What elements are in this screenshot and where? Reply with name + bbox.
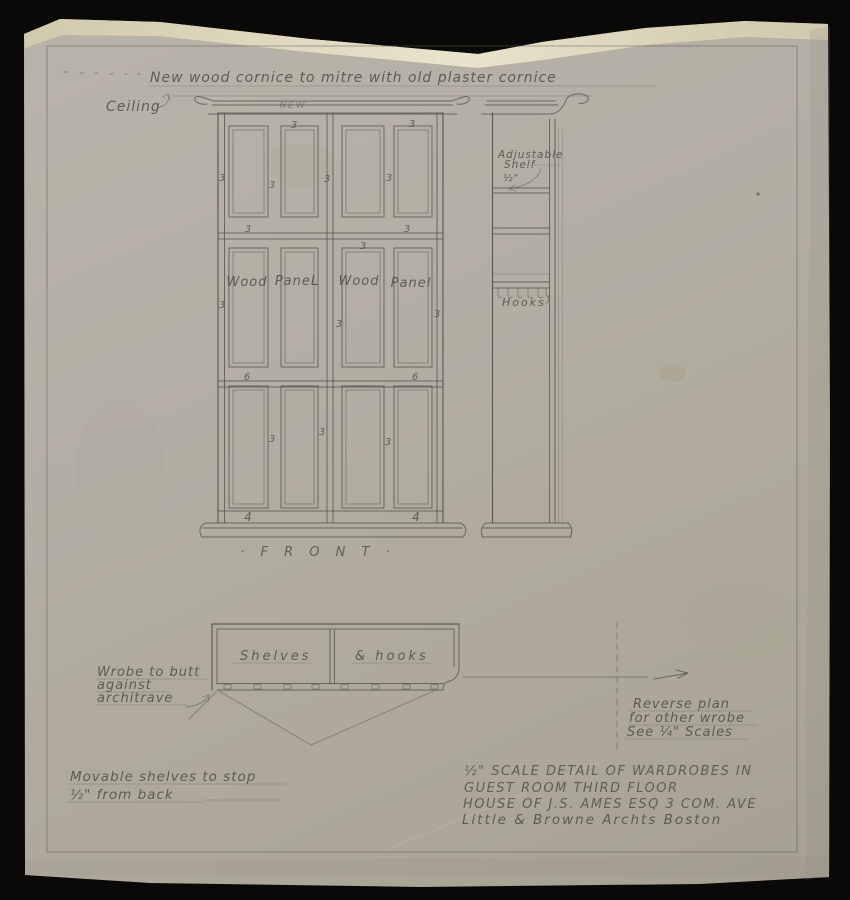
panel (342, 248, 384, 367)
dimension-labels: 3 3 3 3 3 3 3 3 3 3 3 3 3 3 3 6 6 4 4 (219, 119, 440, 524)
shelf-text: Shelf (504, 159, 537, 171)
inner-stiles (225, 113, 438, 523)
panel (281, 248, 318, 367)
panel-mould (398, 252, 428, 363)
cornice-scroll (552, 94, 588, 114)
plan-hooks-label: & hooks (355, 649, 429, 664)
panel (342, 386, 384, 508)
dim-label: 3 (404, 224, 410, 235)
panel-mould (346, 130, 380, 213)
front-caption: · F R O N T · (240, 545, 395, 560)
ceiling-text: Ceiling (106, 99, 161, 115)
reverse-line1: Reverse plan (633, 697, 730, 712)
pencil-drawing: New wood cornice to mitre with old plast… (0, 0, 850, 900)
dim-label: 3 (385, 437, 391, 448)
new-label: NEW (279, 101, 306, 111)
title-line2: GUEST ROOM THIRD FLOOR (464, 781, 679, 796)
middle-panels (229, 248, 432, 367)
section-cornice (482, 94, 588, 114)
plan-view: Shelves & hooks (189, 622, 688, 752)
hooks-text: Hooks (502, 296, 546, 309)
panel-mould (233, 252, 264, 363)
door-swing-lines (219, 691, 434, 745)
plan-corner-mould (443, 668, 459, 690)
panel-word: Wood (338, 274, 379, 289)
hook-rail (493, 282, 549, 288)
movable-shelves-note: Movable shelves to stop ½" from back (68, 769, 285, 803)
section-front-lines (550, 119, 556, 523)
dim-label: 3 (219, 300, 225, 311)
title-line1: ½" SCALE DETAIL OF WARDROBES IN (464, 764, 752, 779)
section-base (481, 523, 571, 537)
dim-label: 6 (412, 372, 418, 383)
panel-mould (285, 252, 314, 363)
dim-label: 3 (269, 434, 275, 445)
plan-shelves-label: Shelves (240, 649, 312, 664)
movable-line1: Movable shelves to stop (70, 769, 256, 785)
plan-jamb-marks (224, 685, 438, 690)
panel-mould (346, 390, 380, 504)
adjustable-shelf-note: Adjustable Shelf ½" (497, 149, 563, 191)
panel (342, 126, 384, 217)
dim-label: 3 (360, 241, 366, 252)
side-section: Adjustable Shelf ½" Hooks (481, 94, 588, 537)
title-line4: Little & Browne Archts Boston (462, 812, 722, 828)
title-line3: HOUSE OF J.S. AMES ESQ 3 COM. AVE (463, 797, 757, 812)
panel-mould (233, 130, 264, 213)
leader-dots (64, 72, 140, 74)
movable-line2: ½" from back (70, 787, 174, 803)
dim-label: 3 (269, 180, 275, 191)
wrobe-arrow (186, 695, 209, 707)
panel (281, 386, 318, 508)
dim-label: 3 (336, 319, 342, 330)
reverse-plan-arrow (654, 670, 688, 679)
cornice-scroll-right (451, 96, 469, 104)
panel (229, 386, 268, 508)
dim-label: 4 (244, 510, 252, 524)
wrobe-note: Wrobe to butt against architrave (96, 665, 209, 707)
architrave-lines (559, 130, 563, 523)
dim-label: 4 (412, 510, 420, 524)
panel-mould (346, 252, 380, 363)
panel-mould (285, 390, 314, 504)
dim-label: 3 (409, 119, 415, 130)
reverse-line2: for other wrobe (629, 711, 745, 726)
cornice-note-text: New wood cornice to mitre with old plast… (150, 70, 557, 86)
panel (394, 248, 432, 367)
panel (229, 248, 268, 367)
panel-word: Wood (226, 275, 267, 290)
dim-label: 3 (386, 173, 392, 184)
dim-label: 3 (319, 427, 325, 438)
dim-label: 3 (245, 224, 251, 235)
panel-word: PaneL (275, 274, 319, 289)
panel-mould (398, 130, 428, 213)
dim-label: 3 (291, 120, 297, 131)
dim-label: 3 (434, 309, 440, 320)
dim-label: 3 (219, 173, 225, 184)
cornice-note: New wood cornice to mitre with old plast… (64, 70, 655, 86)
dim-label: 6 (244, 372, 250, 383)
panel (229, 126, 268, 217)
wrobe-line3: architrave (97, 691, 173, 706)
shelf-lines (493, 188, 549, 234)
scanned-drawing: New wood cornice to mitre with old plast… (0, 0, 850, 900)
shelf-dim: ½" (503, 172, 519, 184)
reverse-line3: See ¼" Scales (627, 725, 733, 740)
hooks-note: Hooks (502, 295, 549, 309)
panel-word: Panel (391, 276, 432, 291)
elevation-base (200, 523, 466, 537)
panel-mould (398, 390, 428, 504)
reverse-plan-note: Reverse plan for other wrobe See ¼" Scal… (626, 697, 757, 740)
panel (394, 126, 432, 217)
title-block: ½" SCALE DETAIL OF WARDROBES IN GUEST RO… (462, 764, 757, 828)
panel (394, 386, 432, 508)
panel-mould (233, 390, 264, 504)
panel-words: Wood PaneL Wood Panel (226, 274, 431, 291)
lower-panels (229, 386, 432, 508)
dim-label: 3 (324, 174, 330, 185)
